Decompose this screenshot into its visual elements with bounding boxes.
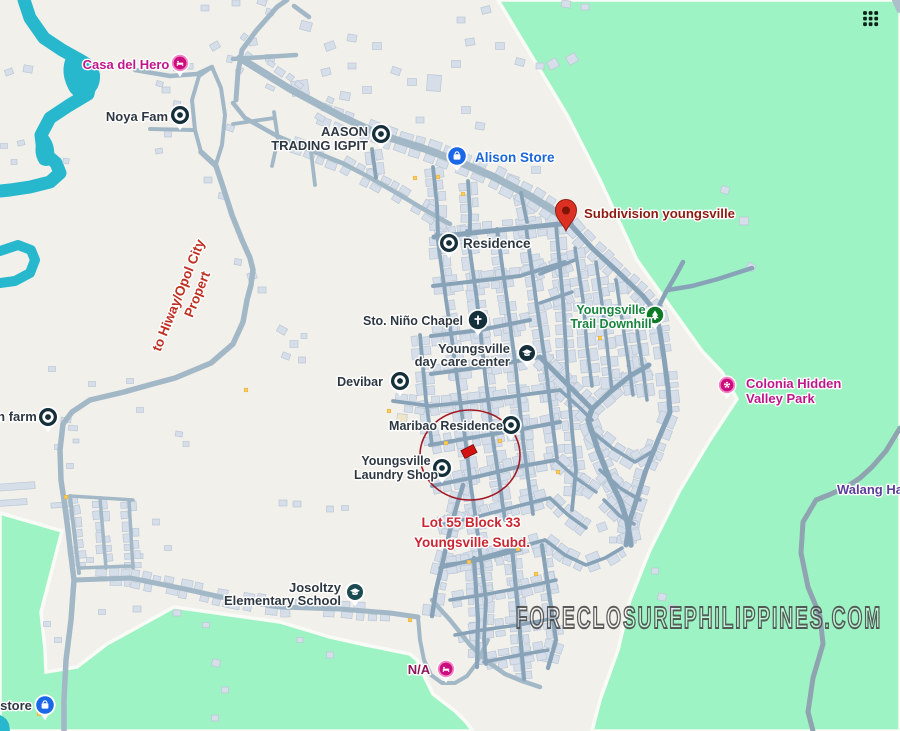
svg-text:Noya Fam: Noya Fam <box>106 109 168 124</box>
svg-text:Lot 55 Block 33: Lot 55 Block 33 <box>421 515 521 530</box>
svg-text:Youngsville: Youngsville <box>361 454 430 468</box>
svg-text:store: store <box>0 698 32 713</box>
svg-text:Sto. Niño Chapel: Sto. Niño Chapel <box>363 314 463 328</box>
svg-text:Elementary School: Elementary School <box>224 593 341 608</box>
svg-text:Trail Downhill: Trail Downhill <box>570 317 651 331</box>
svg-text:Casa del Hero: Casa del Hero <box>83 57 170 72</box>
svg-text:Alison Store: Alison Store <box>475 150 555 165</box>
svg-text:TRADING IGPIT: TRADING IGPIT <box>271 138 368 153</box>
svg-text:Walang Han: Walang Han <box>837 482 900 497</box>
svg-text:Devibar: Devibar <box>337 375 383 389</box>
svg-text:Subdivision youngsville: Subdivision youngsville <box>584 206 735 221</box>
svg-text:Colonia Hidden: Colonia Hidden <box>746 376 841 391</box>
svg-text:Valley Park: Valley Park <box>746 391 815 406</box>
svg-text:Laundry Shop: Laundry Shop <box>354 468 438 482</box>
svg-text:n farm: n farm <box>0 409 37 424</box>
svg-text:Residence: Residence <box>463 236 531 251</box>
svg-text:N/A: N/A <box>408 662 431 677</box>
svg-text:Youngsville Subd.: Youngsville Subd. <box>414 535 530 550</box>
svg-text:Youngsville: Youngsville <box>576 303 645 317</box>
svg-text:day care center: day care center <box>415 354 510 369</box>
svg-text:AASON: AASON <box>321 124 368 139</box>
svg-text:Maribao Residence: Maribao Residence <box>389 419 503 433</box>
